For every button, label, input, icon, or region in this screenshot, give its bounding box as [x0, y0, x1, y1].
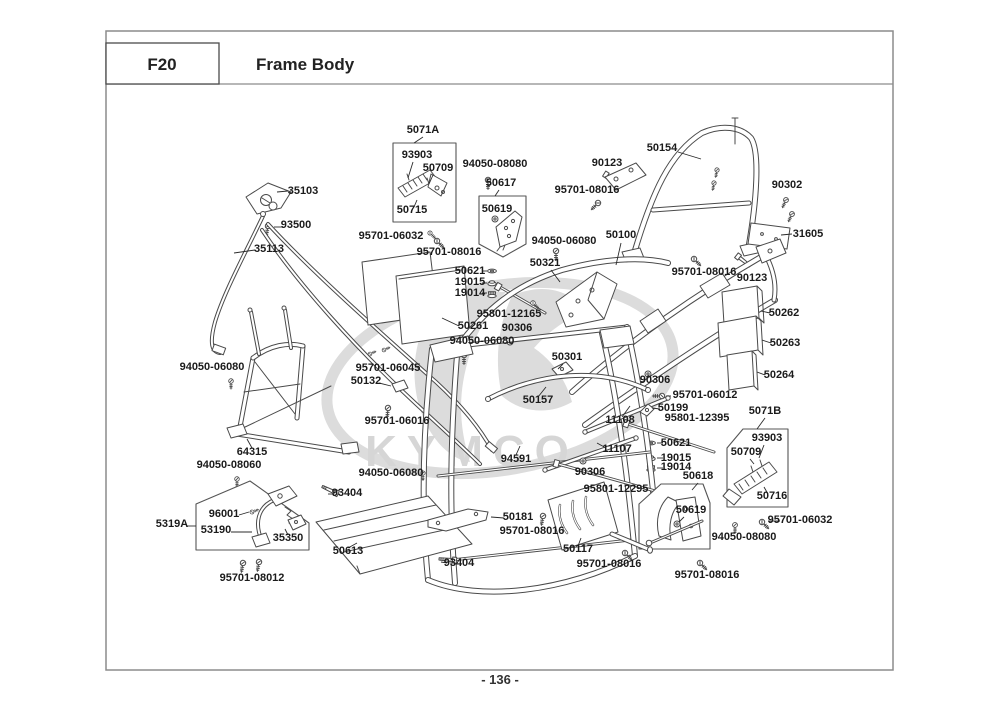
part-art-50618	[639, 484, 710, 549]
part-label-64315: 64315	[237, 446, 268, 458]
part-label-93903: 93903	[752, 432, 783, 444]
washer-icon	[488, 269, 497, 273]
part-label-93404: 93404	[444, 557, 475, 569]
part-label-50181: 50181	[503, 511, 534, 523]
part-label-50100: 50100	[606, 229, 637, 241]
parts-diagram-page: KYMCO F20 Frame Body	[0, 0, 1000, 707]
nut-icon	[492, 216, 498, 222]
part-label-5071A: 5071A	[407, 124, 439, 136]
part-label-11108: 11108	[605, 414, 634, 426]
part-label-50613: 50613	[333, 545, 364, 557]
part-label-90302: 90302	[772, 179, 803, 191]
diagram-art	[196, 118, 795, 592]
part-label-90306: 90306	[640, 374, 671, 386]
part-label-94050-06080: 94050-06080	[180, 361, 245, 373]
part-label-90306: 90306	[502, 322, 533, 334]
part-label-50618: 50618	[683, 470, 714, 482]
screw-icon	[780, 197, 789, 209]
part-label-50715: 50715	[397, 204, 428, 216]
part-label-5319A: 5319A	[156, 518, 188, 530]
part-label-90123: 90123	[592, 157, 623, 169]
part-label-50621: 50621	[661, 437, 692, 449]
part-label-95701-08016: 95701-08016	[555, 184, 620, 196]
part-label-95701-06016: 95701-06016	[365, 415, 430, 427]
leader-line	[757, 418, 765, 429]
part-label-93903: 93903	[402, 149, 433, 161]
part-label-50264: 50264	[764, 369, 795, 381]
part-art-50264	[727, 351, 758, 390]
part-label-95701-06032: 95701-06032	[768, 514, 833, 526]
part-label-95801-12165: 95801-12165	[477, 308, 542, 320]
part-label-5071B: 5071B	[749, 405, 781, 417]
part-label-94050-08080: 94050-08080	[463, 158, 528, 170]
part-label-95701-08016: 95701-08016	[675, 569, 740, 581]
part-label-95701-08016: 95701-08016	[577, 558, 642, 570]
screw-icon	[786, 211, 795, 223]
screw-icon	[589, 199, 601, 211]
part-label-50154: 50154	[647, 142, 678, 154]
part-label-95701-06012: 95701-06012	[673, 389, 738, 401]
part-label-94050-06080: 94050-06080	[532, 235, 597, 247]
grommet-icon	[488, 281, 496, 286]
part-label-35103: 35103	[288, 185, 319, 197]
part-art-35103	[246, 183, 291, 214]
part-label-19014: 19014	[455, 287, 486, 299]
part-label-95701-06032: 95701-06032	[359, 230, 424, 242]
leader-line	[414, 137, 423, 143]
part-label-31605: 31605	[793, 228, 824, 240]
part-label-95701-08016: 95701-08016	[417, 246, 482, 258]
part-label-95801-12395: 95801-12395	[665, 412, 730, 424]
doc-code: F20	[147, 55, 176, 74]
part-label-50301: 50301	[552, 351, 583, 363]
part-label-35350: 35350	[273, 532, 304, 544]
part-art-50263	[718, 316, 763, 357]
leader-line	[495, 190, 499, 196]
screw-icon	[367, 349, 376, 356]
part-label-50157: 50157	[523, 394, 554, 406]
part-label-50709: 50709	[731, 446, 762, 458]
nut-icon	[580, 458, 586, 464]
part-label-96001: 96001	[209, 508, 240, 520]
part-label-50619: 50619	[676, 504, 707, 516]
part-label-50619: 50619	[482, 203, 513, 215]
part-label-90123: 90123	[737, 272, 768, 284]
part-label-94591: 94591	[501, 453, 532, 465]
page-title: Frame Body	[256, 55, 355, 74]
part-label-94050-08080: 94050-08080	[712, 531, 777, 543]
part-label-35113: 35113	[254, 243, 284, 255]
part-label-50117: 50117	[563, 543, 593, 555]
part-label-11107: 11107	[602, 443, 631, 455]
screw-icon	[714, 167, 720, 177]
part-label-50262: 50262	[769, 307, 800, 319]
screw-icon	[711, 180, 717, 190]
screw-icon	[255, 559, 262, 572]
screw-icon	[539, 513, 546, 526]
part-label-94050-06080: 94050-06080	[359, 467, 424, 479]
page-number: - 136 -	[481, 672, 519, 687]
part-label-50132: 50132	[351, 375, 382, 387]
part-label-50321: 50321	[530, 257, 561, 269]
part-label-50263: 50263	[770, 337, 801, 349]
part-label-95701-08012: 95701-08012	[220, 572, 285, 584]
bushing-icon	[488, 292, 496, 298]
part-label-53190: 53190	[201, 524, 232, 536]
part-label-50716: 50716	[757, 490, 788, 502]
part-label-95701-06045: 95701-06045	[356, 362, 421, 374]
screw-icon	[381, 345, 390, 352]
screw-icon	[239, 560, 246, 573]
part-label-93500: 93500	[281, 219, 312, 231]
part-label-50709: 50709	[423, 162, 454, 174]
part-label-50261: 50261	[458, 320, 489, 332]
part-label-94050-06080: 94050-06080	[450, 335, 515, 347]
screw-icon	[229, 379, 234, 389]
part-label-50617: 50617	[486, 177, 517, 189]
part-label-95701-08016: 95701-08016	[500, 525, 565, 537]
part-label-95701-08016: 95701-08016	[672, 266, 737, 278]
part-label-95801-12295: 95801-12295	[584, 483, 649, 495]
leader-line	[678, 152, 701, 159]
part-label-90306: 90306	[575, 466, 606, 478]
part-label-93404: 93404	[332, 487, 363, 499]
part-label-94050-08060: 94050-08060	[197, 459, 262, 471]
